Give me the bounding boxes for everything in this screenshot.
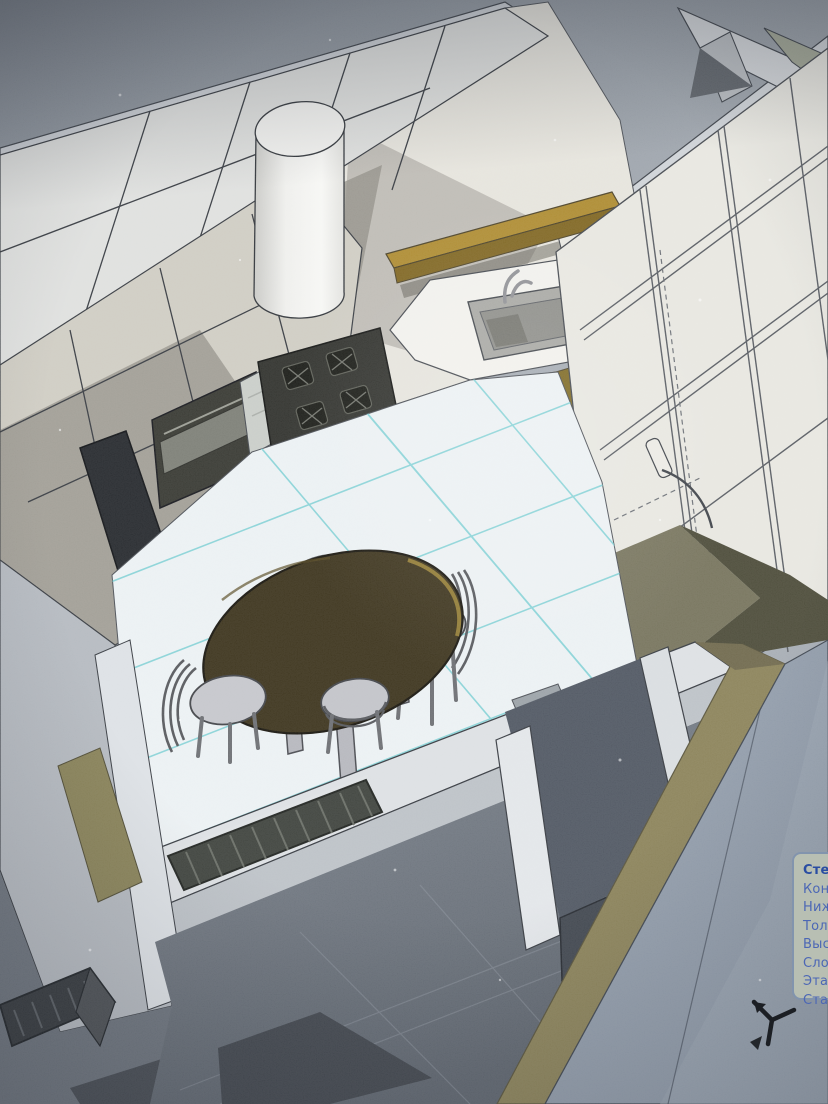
tooltip-title: Стен xyxy=(803,862,828,881)
element-info-tooltip: Стен Конс Нижн Толщ Высот Слой: Этаж: Ст… xyxy=(792,852,828,1000)
tooltip-line: Конс xyxy=(803,881,828,900)
model-3d-scene[interactable] xyxy=(0,0,828,1104)
tooltip-line: Высот xyxy=(803,936,828,955)
cad-tripod-cursor-icon xyxy=(742,992,806,1056)
tooltip-line: Толщ xyxy=(803,918,828,937)
tooltip-line: Слой: xyxy=(803,955,828,974)
tooltip-line: Нижн xyxy=(803,899,828,918)
tooltip-line: Статус xyxy=(803,992,828,1011)
tooltip-line: Этаж: xyxy=(803,973,828,992)
cad-3d-viewport[interactable]: Стен Конс Нижн Толщ Высот Слой: Этаж: Ст… xyxy=(0,0,828,1104)
photo-grain xyxy=(0,0,828,1104)
